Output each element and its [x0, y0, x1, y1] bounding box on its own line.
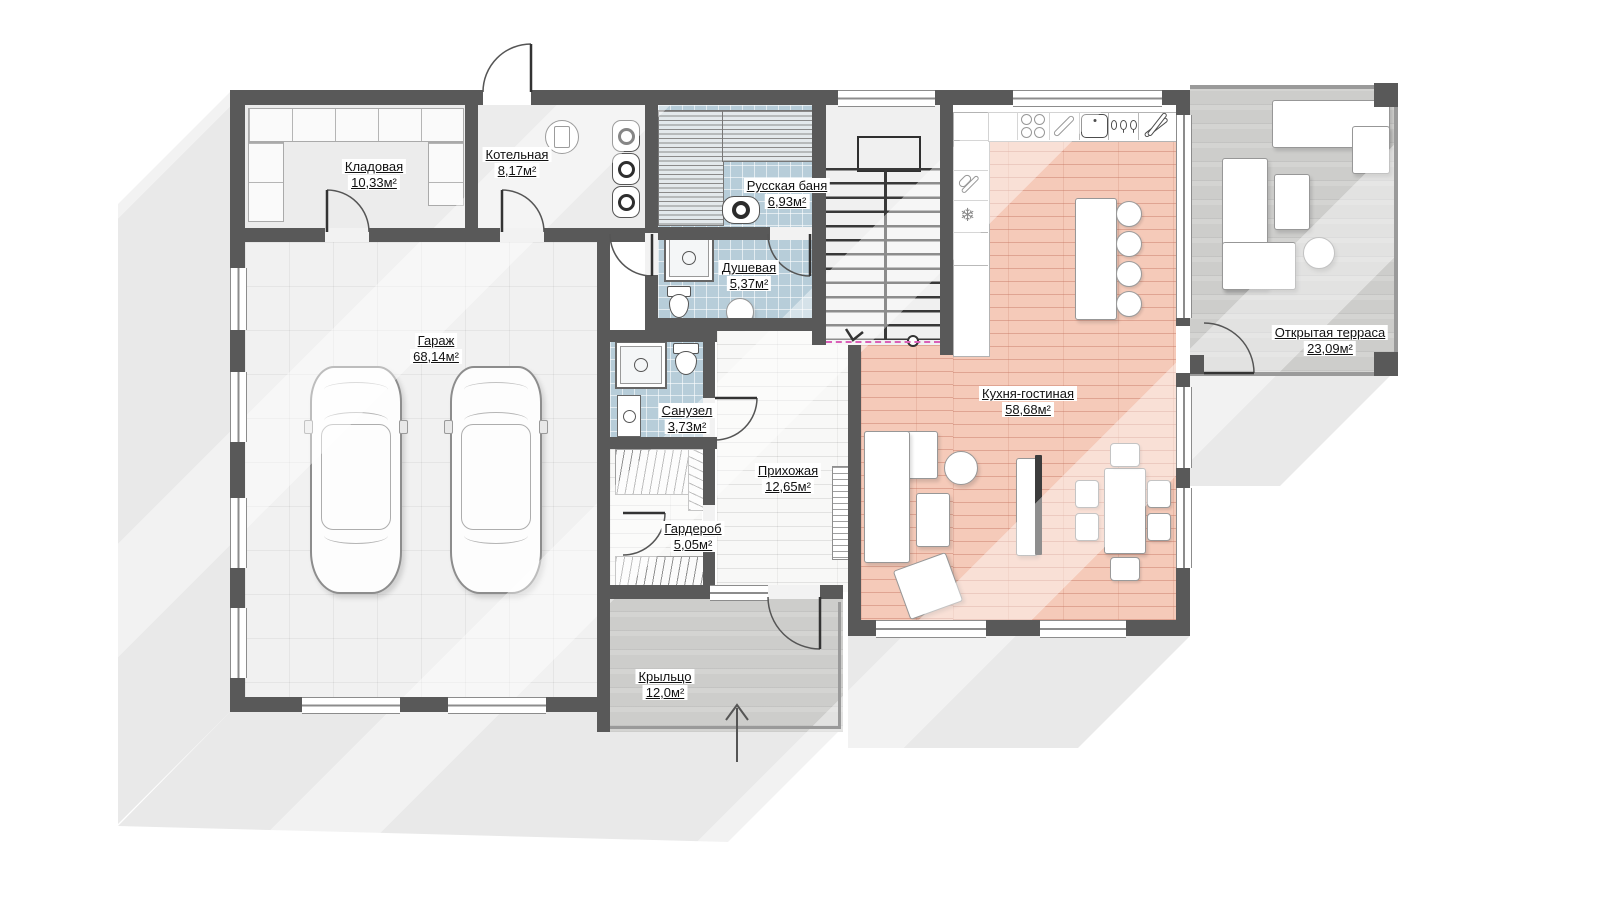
terrace-edge	[1190, 85, 1398, 89]
wall-segment	[1176, 90, 1190, 115]
room-area: 68,14м²	[410, 349, 462, 364]
floor-hallway	[717, 330, 848, 592]
wall-segment	[400, 697, 448, 712]
garage-door	[448, 697, 546, 714]
water-tank-icon	[612, 186, 640, 218]
room-name: Гараж	[415, 333, 458, 348]
window	[230, 372, 247, 442]
door-opening	[483, 90, 531, 105]
dining-table	[1104, 468, 1146, 554]
wall-segment	[597, 592, 610, 732]
window	[230, 268, 247, 330]
room-label-porch: Крыльцо 12,0м²	[635, 668, 694, 701]
snowflake-icon: ❄	[960, 206, 975, 224]
shower-icon	[664, 234, 714, 282]
floor-porch	[597, 592, 843, 732]
shelving-unit	[428, 142, 464, 206]
terrace-edge	[1394, 85, 1398, 376]
window	[710, 585, 768, 601]
room-label-storage: Кладовая 10,33м²	[342, 158, 406, 191]
wall-segment	[1176, 468, 1190, 488]
clothes-rack	[615, 449, 691, 495]
wall-segment	[848, 620, 876, 636]
room-name: Душевая	[719, 260, 779, 275]
door-opening	[325, 228, 369, 242]
wall-segment	[230, 697, 302, 712]
coffee-table	[944, 451, 978, 485]
toilet-icon	[667, 286, 691, 318]
window	[1176, 387, 1192, 468]
wall-segment	[1126, 620, 1190, 636]
floor-garage	[245, 242, 597, 697]
washbasin-icon	[617, 395, 641, 437]
room-label-wc: Санузел 3,73м²	[659, 402, 716, 435]
stove-icon	[1019, 114, 1047, 138]
window	[230, 498, 247, 568]
wall-segment	[940, 105, 953, 355]
wall-segment	[369, 228, 500, 242]
wall-segment	[230, 90, 483, 105]
wall-segment	[1176, 568, 1190, 620]
room-area: 6,93м²	[765, 194, 810, 209]
door-opening	[645, 233, 658, 275]
stair-cut-line	[826, 341, 940, 343]
wall-segment	[848, 345, 861, 620]
glassware-icon	[1109, 115, 1138, 135]
wall-segment	[658, 227, 770, 240]
wall-segment	[820, 585, 843, 599]
window	[230, 608, 247, 678]
window	[1176, 115, 1192, 318]
terrace-post	[1190, 355, 1204, 374]
wall-segment	[597, 585, 710, 599]
wall-segment	[230, 330, 245, 372]
ottoman	[916, 493, 950, 547]
room-area: 10,33м²	[348, 175, 400, 190]
room-label-hallway: Прихожая 12,65м²	[755, 462, 821, 495]
entrance-door-opening	[768, 585, 820, 599]
room-name: Гардероб	[661, 521, 724, 536]
door-opening	[500, 228, 544, 242]
door-opening	[770, 227, 812, 240]
wall-segment	[230, 568, 245, 608]
room-area: 8,17м²	[495, 163, 540, 178]
water-tank-icon	[612, 120, 640, 152]
room-area: 12,65м²	[762, 479, 814, 494]
terrace-edge	[1190, 372, 1398, 376]
room-label-shower: Душевая 5,37м²	[719, 259, 779, 292]
door-opening	[1176, 326, 1190, 373]
sofa	[864, 431, 910, 563]
room-area: 23,09м²	[1304, 341, 1356, 356]
shower-icon	[615, 341, 667, 389]
window	[838, 90, 935, 107]
room-name: Прихожая	[755, 463, 821, 478]
wall-segment	[812, 105, 826, 345]
room-name: Кухня-гостиная	[979, 386, 1077, 401]
dining-chair	[1075, 513, 1099, 541]
terrace-ottoman	[1274, 174, 1310, 230]
dining-chair	[1075, 480, 1099, 508]
wall-segment	[465, 105, 478, 228]
counter-divider	[953, 265, 988, 266]
bar-stool	[1116, 261, 1142, 287]
porch-edge	[838, 602, 841, 729]
room-label-terrace: Открытая терраса 23,09м²	[1272, 324, 1388, 357]
stair-divider	[884, 168, 887, 340]
room-name: Открытая терраса	[1272, 325, 1388, 340]
wall-segment	[531, 90, 838, 105]
counter-divider	[1079, 112, 1080, 140]
stair-landing	[857, 136, 921, 172]
sauna-bench	[658, 110, 724, 226]
kitchen-island	[1075, 198, 1117, 320]
whisk-icon	[954, 171, 986, 197]
dining-chair	[1147, 513, 1171, 541]
counter-divider	[953, 140, 988, 141]
room-area: 3,73м²	[665, 419, 710, 434]
wall-segment	[1176, 373, 1190, 387]
room-name: Кладовая	[342, 159, 406, 174]
terrace-table	[1303, 237, 1335, 269]
counter-divider	[953, 200, 988, 201]
counter-divider	[1138, 112, 1139, 140]
room-area: 5,05м²	[671, 537, 716, 552]
toilet-icon	[673, 343, 699, 375]
sink-icon	[1081, 114, 1108, 138]
garage-door	[302, 697, 400, 714]
dining-chair	[1110, 557, 1140, 581]
wall-segment	[935, 90, 1013, 105]
wall-segment	[597, 330, 717, 342]
room-label-wardrobe: Гардероб 5,05м²	[661, 520, 724, 553]
counter-divider	[953, 232, 988, 233]
wall-segment	[230, 228, 325, 242]
window	[1013, 90, 1162, 107]
room-label-kitchen: Кухня-гостиная 58,68м²	[979, 385, 1077, 418]
wall-segment	[703, 330, 715, 398]
sauna-bench	[722, 110, 814, 162]
car	[450, 366, 542, 594]
car	[310, 366, 402, 594]
terrace-sofa-chaise	[1352, 126, 1390, 174]
porch-edge	[610, 726, 840, 729]
kitchen-counter	[953, 112, 990, 357]
shelving-unit	[248, 108, 464, 142]
room-area: 58,68м²	[1002, 402, 1054, 417]
wall-segment	[597, 232, 610, 592]
wall-segment	[1176, 318, 1190, 326]
window	[1176, 488, 1192, 568]
wall-segment	[645, 105, 658, 233]
room-label-boiler: Котельная 8,17м²	[483, 146, 552, 179]
room-name: Русская баня	[744, 178, 830, 193]
room-area: 5,37м²	[727, 276, 772, 291]
counter-divider	[1017, 112, 1018, 140]
terrace-post	[1374, 83, 1398, 107]
wall-segment	[986, 620, 1040, 636]
stair-treads	[826, 168, 940, 340]
room-label-bath: Русская баня 6,93м²	[744, 177, 830, 210]
bar-stool	[1116, 291, 1142, 317]
room-area: 12,0м²	[643, 685, 688, 700]
window	[876, 620, 986, 638]
tv-screen	[1035, 455, 1042, 555]
wall-segment	[230, 442, 245, 498]
room-name: Крыльцо	[635, 669, 694, 684]
dining-chair	[1110, 443, 1140, 467]
wall-segment	[703, 449, 715, 505]
water-tank-icon	[612, 153, 640, 185]
window	[1040, 620, 1126, 638]
bar-stool	[1116, 231, 1142, 257]
terrace-sofa	[1222, 242, 1296, 290]
room-label-garage: Гараж 68,14м²	[410, 332, 462, 365]
shelving-unit	[248, 142, 284, 222]
bar-stool	[1116, 201, 1142, 227]
wall-segment	[597, 437, 717, 449]
utensil-icon	[1050, 113, 1078, 139]
room-name: Котельная	[483, 147, 552, 162]
dining-chair	[1147, 480, 1171, 508]
room-name: Санузел	[659, 403, 716, 418]
floor-plan: ❄	[0, 0, 1600, 900]
tongs-icon	[1140, 113, 1172, 139]
